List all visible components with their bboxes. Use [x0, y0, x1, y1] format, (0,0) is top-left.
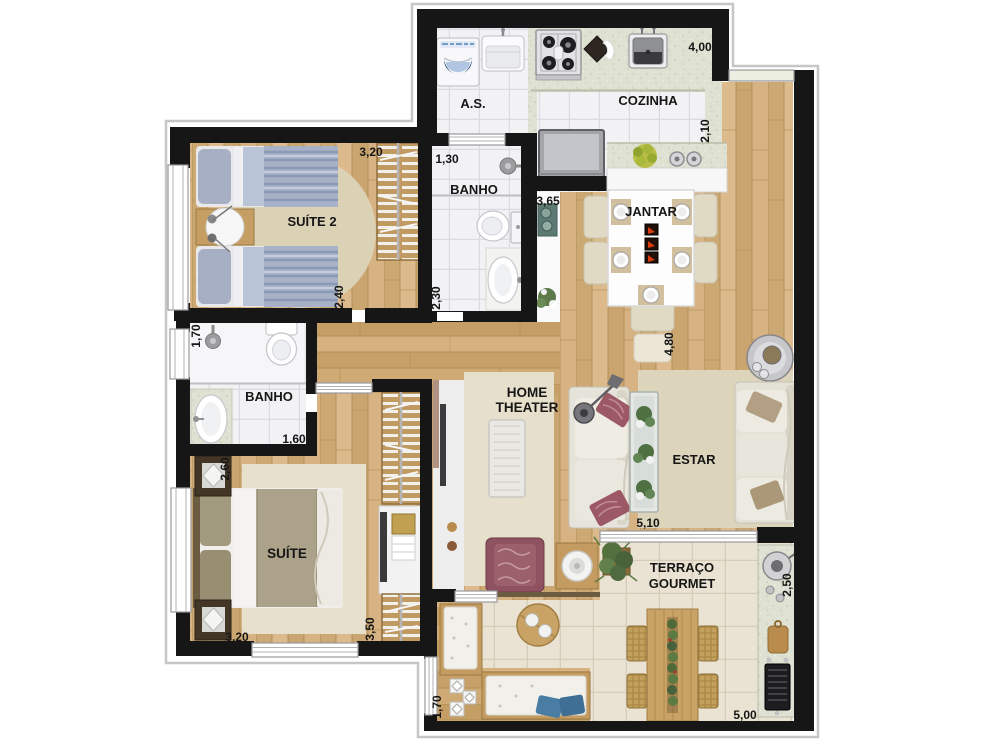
svg-text:COZINHA: COZINHA [618, 93, 678, 108]
svg-text:1,30: 1,30 [435, 152, 459, 166]
svg-text:ESTAR: ESTAR [672, 452, 716, 467]
svg-text:SUÍTE: SUÍTE [267, 546, 307, 561]
svg-text:4,00: 4,00 [688, 40, 712, 54]
svg-text:1,60: 1,60 [282, 432, 306, 446]
svg-text:A.S.: A.S. [460, 96, 485, 111]
svg-text:BANHO: BANHO [450, 182, 498, 197]
svg-text:3,65: 3,65 [536, 194, 560, 208]
svg-text:TERRAÇO: TERRAÇO [650, 560, 714, 575]
svg-text:3,20: 3,20 [359, 145, 383, 159]
svg-text:3,20: 3,20 [225, 630, 249, 644]
svg-text:5,00: 5,00 [733, 708, 757, 722]
svg-text:1,70: 1,70 [189, 324, 203, 348]
svg-text:JANTAR: JANTAR [625, 204, 677, 219]
svg-text:GOURMET: GOURMET [649, 576, 716, 591]
svg-text:BANHO: BANHO [245, 389, 293, 404]
svg-text:5,10: 5,10 [636, 516, 660, 530]
svg-text:2,40: 2,40 [332, 285, 346, 309]
svg-text:2,60: 2,60 [218, 457, 232, 481]
svg-text:4,80: 4,80 [662, 332, 676, 356]
svg-text:1,70: 1,70 [430, 695, 444, 719]
svg-text:SUÍTE 2: SUÍTE 2 [287, 214, 336, 229]
svg-text:THEATER: THEATER [496, 400, 559, 415]
svg-text:2,30: 2,30 [429, 286, 443, 310]
svg-text:2,50: 2,50 [780, 573, 794, 597]
svg-text:HOME: HOME [507, 385, 548, 400]
svg-text:3,50: 3,50 [363, 617, 377, 641]
svg-text:2,10: 2,10 [698, 119, 712, 143]
